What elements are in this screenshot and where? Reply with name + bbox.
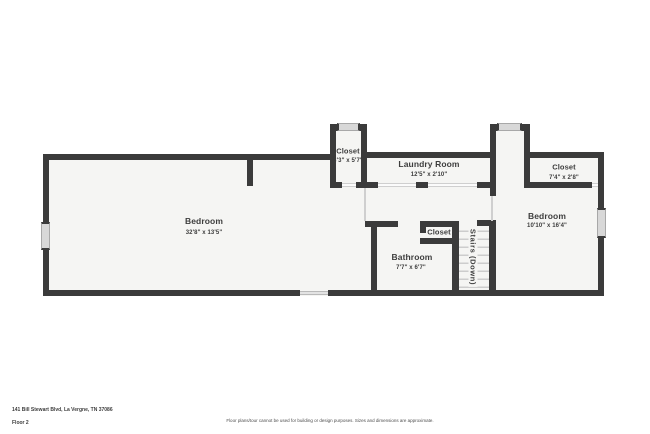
floor-label: Floor 2: [12, 420, 29, 426]
room-label-closet-right: Closet: [552, 163, 576, 172]
wall-segment: [361, 152, 496, 158]
room-dims-bedroom-left: 32'8" x 13'5": [186, 230, 223, 236]
wall-segment: [247, 154, 253, 186]
address-text: 141 Bill Stewart Blvd, La Vergne, TN 370…: [12, 407, 113, 413]
wall-segment: [43, 290, 300, 296]
wall-segment: [420, 238, 459, 244]
wall-segment: [330, 124, 336, 188]
wall-segment: [43, 154, 336, 160]
room-label-laundry: Laundry Room: [398, 159, 459, 169]
door-opening: [378, 183, 416, 187]
room-dims-closet-top: 3'3" x 5'7": [333, 158, 363, 164]
wall-segment: [477, 220, 490, 226]
room-dims-bedroom-right: 10'10" x 16'4": [527, 223, 567, 229]
room-label-bedroom-right: Bedroom: [528, 211, 566, 221]
room-dims-bathroom: 7'7" x 6'7": [396, 265, 426, 271]
room-label-closet-small: Closet: [427, 228, 451, 237]
window-marker: [41, 222, 50, 250]
disclaimer-text: Floor plans/tour cannot be used for buil…: [226, 418, 433, 423]
room-label-closet-top: Closet: [336, 147, 360, 156]
wall-segment: [416, 182, 428, 188]
wall-segment: [365, 221, 398, 227]
wall-segment: [530, 152, 604, 158]
room-dims-closet-right: 7'4" x 2'8": [549, 175, 579, 181]
room-label-stairs: Stairs (Down): [469, 227, 478, 287]
wall-segment: [420, 221, 426, 233]
wall-segment: [452, 221, 459, 296]
door-opening: [491, 196, 493, 221]
door-opening: [342, 183, 356, 187]
floorplan-canvas: Bedroom 32'8" x 13'5" Closet 3'3" x 5'7"…: [0, 0, 650, 434]
floor-area-main: [43, 154, 604, 296]
wall-segment: [330, 182, 342, 188]
wall-segment: [328, 290, 604, 296]
door-opening: [364, 188, 366, 221]
wall-segment: [524, 182, 592, 188]
door-opening: [592, 183, 598, 187]
door-opening: [428, 183, 477, 187]
wall-segment: [490, 124, 496, 196]
window-marker: [597, 208, 606, 238]
room-label-bathroom: Bathroom: [392, 252, 433, 262]
window-marker: [337, 123, 360, 131]
room-label-bedroom-left: Bedroom: [185, 216, 223, 226]
window-marker: [497, 123, 522, 131]
wall-segment: [489, 220, 496, 296]
door-opening: [300, 291, 328, 295]
room-dims-laundry: 12'5" x 2'10": [411, 172, 448, 178]
wall-segment: [371, 221, 377, 296]
